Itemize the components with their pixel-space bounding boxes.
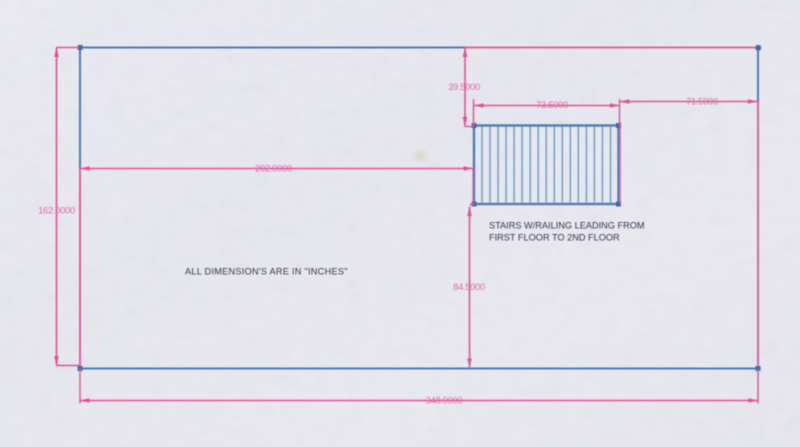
- svg-text:348.0000: 348.0000: [426, 395, 463, 406]
- svg-text:ALL DIMENSION'S ARE IN "INCHES: ALL DIMENSION'S ARE IN "INCHES": [185, 267, 348, 277]
- svg-text:71.5000: 71.5000: [686, 96, 718, 107]
- svg-text:73.5000: 73.5000: [536, 99, 568, 110]
- svg-text:39.5000: 39.5000: [448, 81, 480, 92]
- svg-text:202.0000: 202.0000: [255, 163, 292, 174]
- svg-text:84.5000: 84.5000: [453, 281, 485, 292]
- svg-text:162.0000: 162.0000: [38, 205, 75, 216]
- svg-text:FIRST FLOOR TO 2ND FLOOR: FIRST FLOOR TO 2ND FLOOR: [489, 232, 620, 242]
- svg-text:STAIRS W/RAILING LEADING FROM: STAIRS W/RAILING LEADING FROM: [489, 221, 645, 231]
